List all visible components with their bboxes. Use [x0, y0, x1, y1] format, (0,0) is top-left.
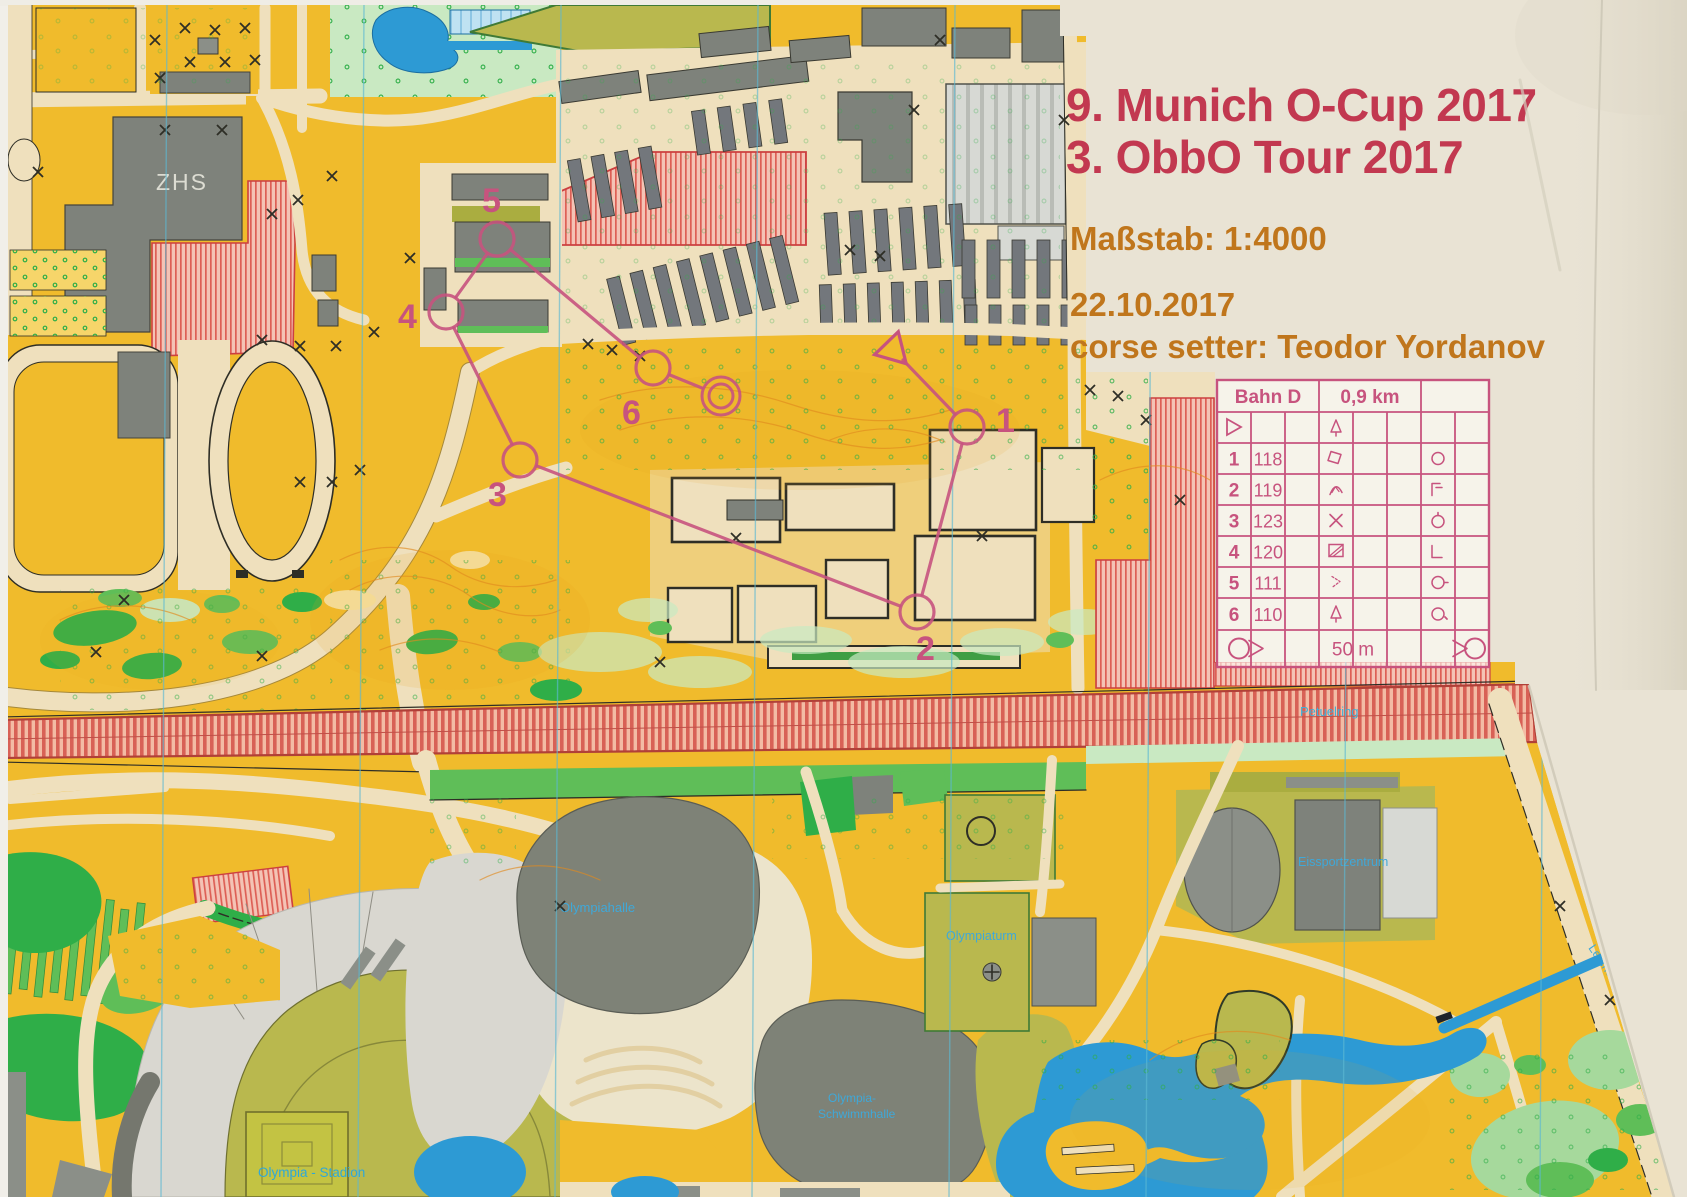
- svg-text:120: 120: [1253, 543, 1283, 563]
- svg-text:5: 5: [1229, 574, 1240, 595]
- svg-text:0,9 km: 0,9 km: [1340, 387, 1399, 408]
- svg-text:1: 1: [996, 402, 1015, 440]
- svg-text:corse setter: Teodor Yordanov: corse setter: Teodor Yordanov: [1070, 328, 1546, 365]
- svg-text:22.10.2017: 22.10.2017: [1070, 286, 1235, 323]
- svg-text:3: 3: [1229, 512, 1240, 533]
- svg-text:ZHS: ZHS: [156, 169, 208, 195]
- svg-text:4: 4: [398, 298, 417, 336]
- svg-text:Petuelring: Petuelring: [1300, 704, 1359, 719]
- svg-text:Eissportzentrum: Eissportzentrum: [1298, 855, 1388, 869]
- svg-text:111: 111: [1254, 574, 1281, 594]
- svg-text:1: 1: [1229, 450, 1240, 471]
- svg-text:110: 110: [1254, 605, 1283, 625]
- svg-text:118: 118: [1254, 450, 1283, 470]
- svg-text:6: 6: [622, 394, 641, 432]
- svg-text:5: 5: [482, 182, 501, 220]
- svg-text:Bahn D: Bahn D: [1235, 387, 1302, 408]
- svg-text:2: 2: [1229, 481, 1240, 502]
- svg-text:Olympiahalle: Olympiahalle: [560, 900, 635, 915]
- svg-text:Olympia - Stadion: Olympia - Stadion: [258, 1165, 365, 1180]
- svg-text:Olympia-: Olympia-: [828, 1091, 876, 1105]
- svg-text:Olympiaturm: Olympiaturm: [946, 929, 1017, 943]
- svg-text:3. ObbO Tour 2017: 3. ObbO Tour 2017: [1066, 131, 1463, 183]
- svg-text:Schwimmhalle: Schwimmhalle: [818, 1107, 896, 1121]
- svg-text:2: 2: [916, 630, 935, 668]
- svg-text:3: 3: [488, 476, 507, 514]
- svg-text:Maßstab: 1:4000: Maßstab: 1:4000: [1070, 220, 1327, 257]
- svg-text:119: 119: [1254, 481, 1283, 501]
- svg-text:9. Munich O-Cup 2017: 9. Munich O-Cup 2017: [1066, 79, 1537, 131]
- svg-text:50 m: 50 m: [1332, 640, 1374, 661]
- svg-text:4: 4: [1229, 543, 1240, 564]
- svg-text:6: 6: [1229, 605, 1240, 626]
- svg-text:123: 123: [1253, 512, 1283, 532]
